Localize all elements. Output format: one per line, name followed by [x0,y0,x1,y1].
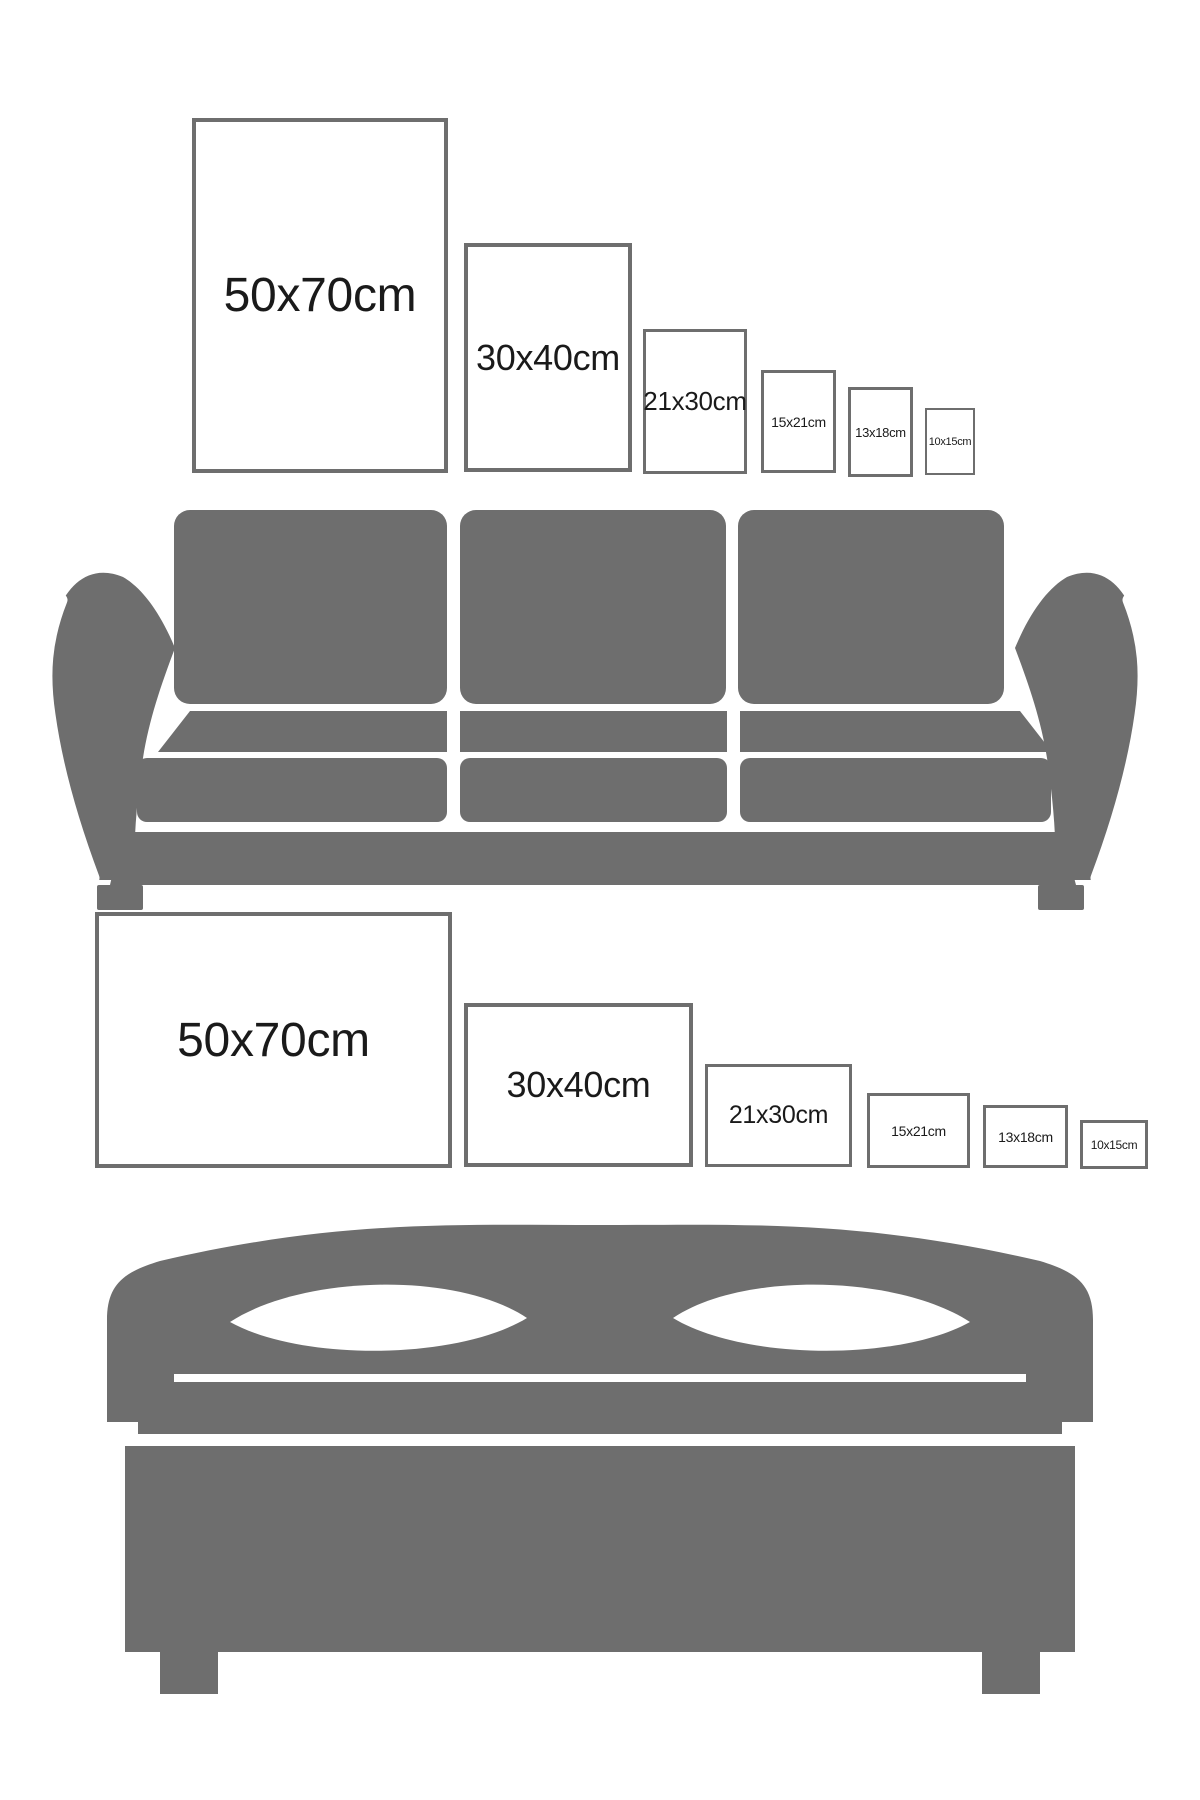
cushion-gap [447,707,460,757]
size-frame-label: 10x15cm [929,436,972,448]
sofa-back-cushion [174,510,447,704]
size-frame-label: 21x30cm [729,1101,828,1130]
size-frame-label: 21x30cm [643,386,746,417]
sofa-foot [97,885,143,910]
size-frame-label: 15x21cm [891,1123,946,1139]
size-frame-label: 10x15cm [1091,1138,1138,1152]
sofa-base [110,832,1076,885]
bed-icon [60,1210,1140,1700]
size-frame-label: 30x40cm [476,337,620,379]
size-frame-30x40cm: 30x40cm [464,243,632,472]
size-frame-15x21cm: 15x21cm [867,1093,970,1168]
size-frame-10x15cm: 10x15cm [925,408,975,475]
size-frame-15x21cm: 15x21cm [761,370,836,473]
sofa-foot [1038,885,1084,910]
size-frame-50x70cm: 50x70cm [192,118,448,473]
bed-base [125,1446,1075,1652]
sofa-seat-cushion [740,758,1051,822]
size-frame-label: 30x40cm [507,1064,651,1106]
poster-size-guide: 50x70cm30x40cm21x30cm15x21cm13x18cm10x15… [0,0,1200,1800]
size-frame-13x18cm: 13x18cm [983,1105,1068,1168]
bed-foot [982,1652,1040,1694]
sofa-deck [158,711,1052,752]
sofa-back-cushion [738,510,1004,704]
size-frame-label: 13x18cm [998,1129,1053,1145]
size-frame-50x70cm: 50x70cm [95,912,452,1168]
size-frame-13x18cm: 13x18cm [848,387,913,477]
bed-foot [160,1652,218,1694]
size-frame-label: 50x70cm [224,268,417,323]
size-frame-label: 13x18cm [855,425,906,440]
sofa-seat-cushion [460,758,727,822]
size-frame-label: 15x21cm [771,414,826,430]
size-frame-label: 50x70cm [177,1013,370,1068]
sofa-back-cushion [460,510,726,704]
size-frame-21x30cm: 21x30cm [705,1064,852,1167]
cushion-gap [727,707,740,757]
size-frame-21x30cm: 21x30cm [643,329,747,474]
sofa-seat-cushion [137,758,447,822]
sofa-icon [30,500,1170,912]
bed-mattress-rail [138,1382,1062,1434]
size-frame-30x40cm: 30x40cm [464,1003,693,1167]
size-frame-10x15cm: 10x15cm [1080,1120,1148,1169]
